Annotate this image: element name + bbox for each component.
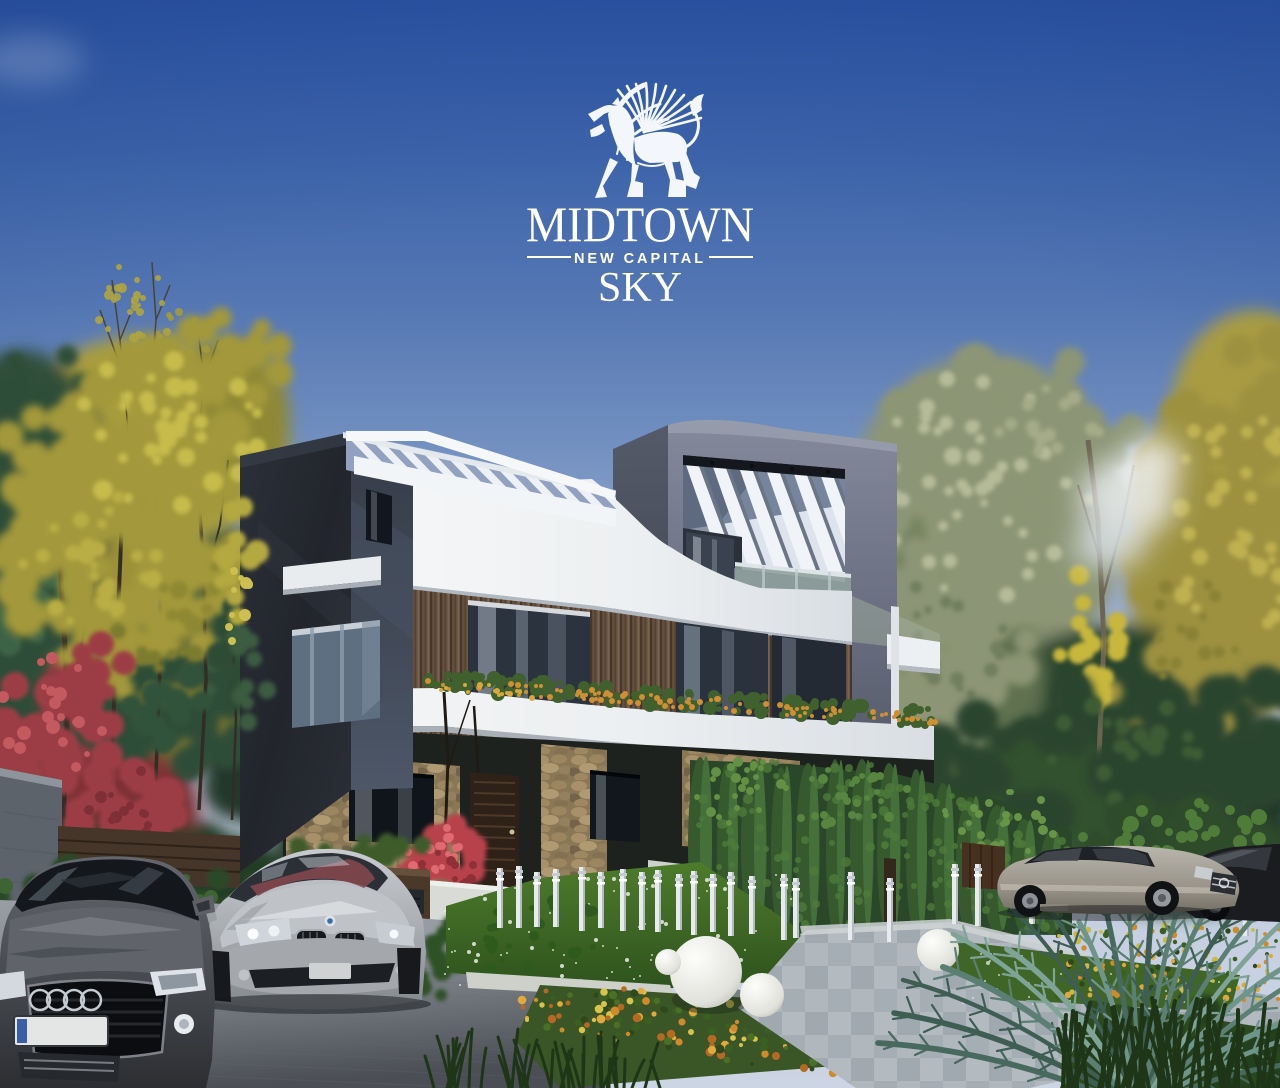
svg-text:MIDTOWN: MIDTOWN (526, 196, 754, 252)
svg-text:SKY: SKY (598, 265, 682, 311)
